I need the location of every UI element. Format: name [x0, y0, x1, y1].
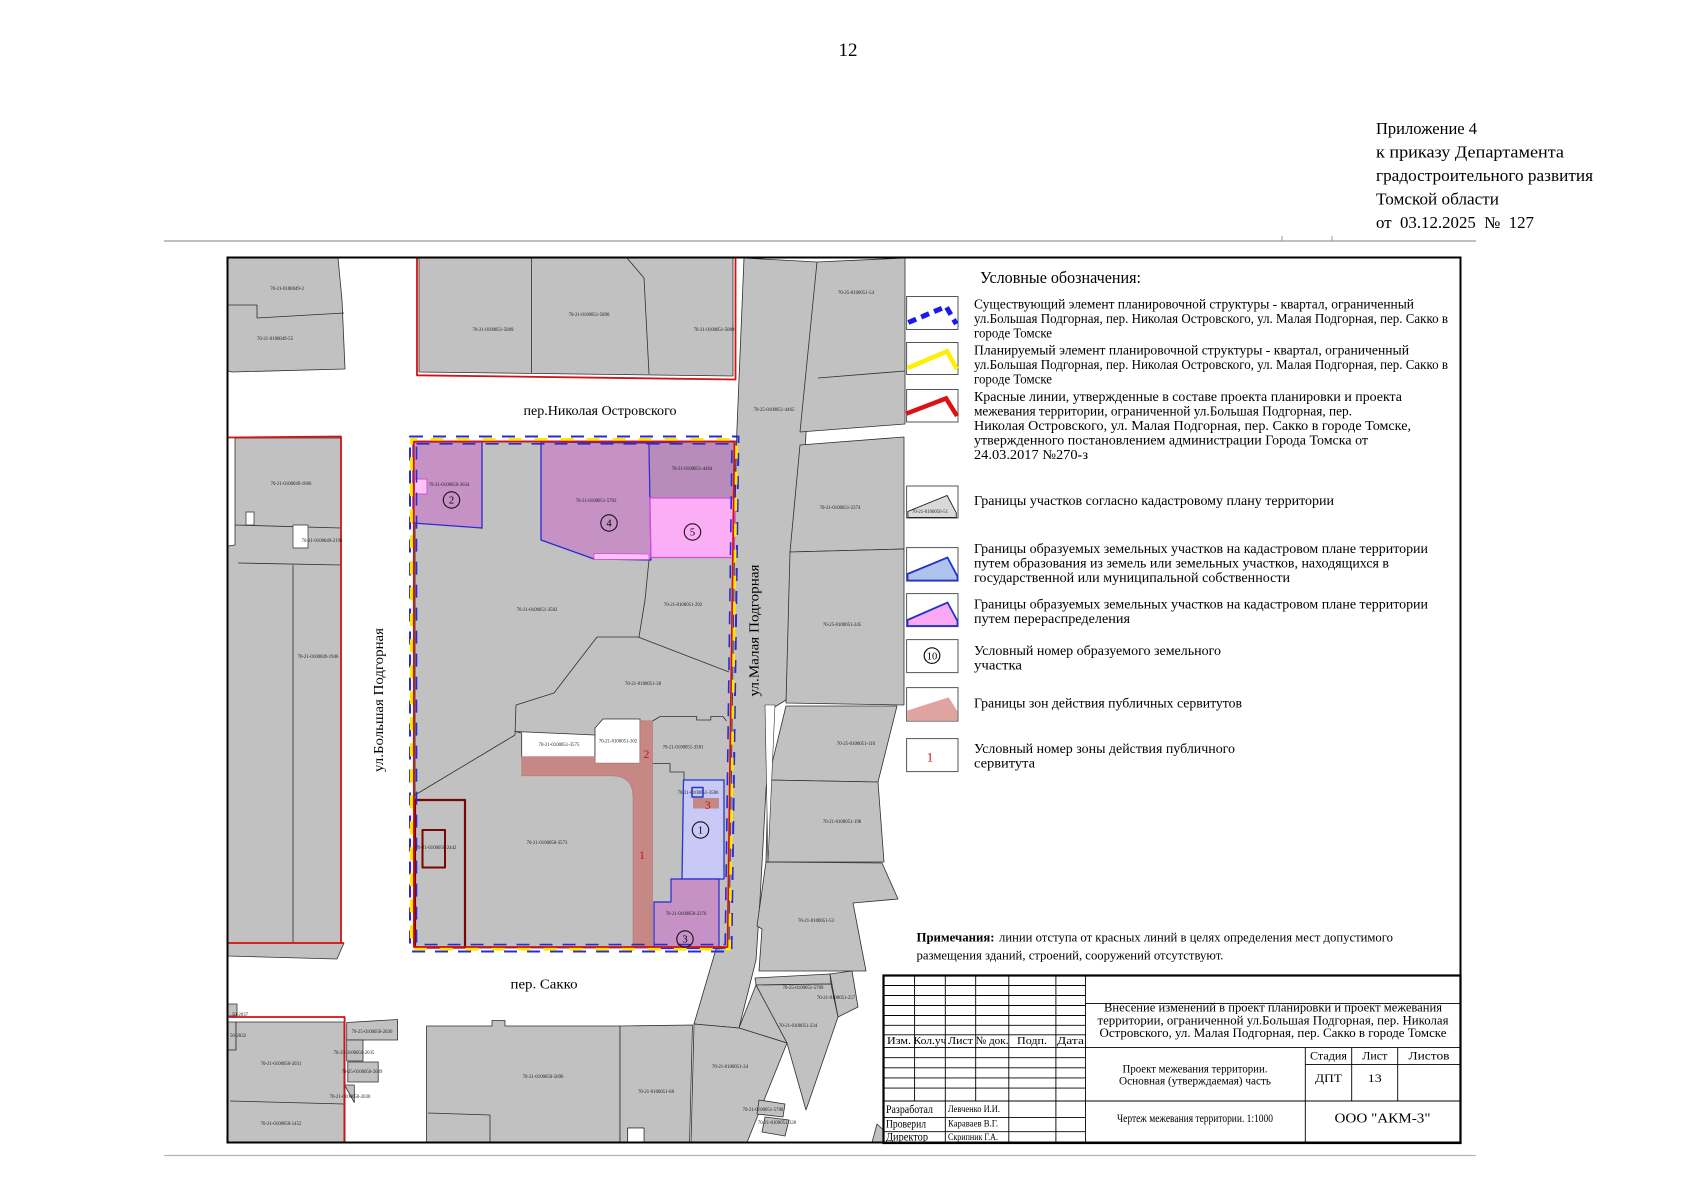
- svg-text:Изм.: Изм.: [887, 1035, 911, 1047]
- svg-text:Проверил: Проверил: [886, 1118, 926, 1130]
- svg-text:Левченко И.И.: Левченко И.И.: [948, 1105, 1000, 1115]
- svg-text:70-25-0100051-110: 70-25-0100051-110: [837, 742, 876, 747]
- svg-text:70-21-0100051-5089: 70-21-0100051-5089: [473, 328, 514, 333]
- svg-text:участка: участка: [974, 658, 1022, 673]
- svg-text:70-25-0100050-2035: 70-25-0100050-2035: [334, 1051, 375, 1056]
- svg-text:70-21-0100049-55: 70-21-0100049-55: [257, 337, 294, 342]
- svg-text:от 03.12.2025 № 127: от 03.12.2025 № 127: [1376, 213, 1534, 232]
- svg-text:70-21-0100049-2198: 70-21-0100049-2198: [302, 539, 343, 544]
- svg-text:70-21-0100051-34: 70-21-0100051-34: [712, 1065, 749, 1070]
- svg-text:межевания территории, ограниче: межевания территории, ограниченной ул.Бо…: [974, 404, 1352, 419]
- svg-text:70-21-0100051-3581: 70-21-0100051-3581: [663, 746, 704, 751]
- svg-text:70-21-0100051-234: 70-21-0100051-234: [779, 1024, 818, 1029]
- svg-text:Островского, ул. Малая Подгорн: Островского, ул. Малая Подгорная, пер. С…: [1100, 1025, 1447, 1040]
- svg-text:1: 1: [698, 826, 703, 837]
- svg-text:70-21-0100051-198: 70-21-0100051-198: [823, 820, 862, 825]
- svg-text:Условный номер зоны действия п: Условный номер зоны действия публичного: [974, 741, 1235, 756]
- svg-text:70-21-0100049-3: 70-21-0100049-3: [270, 287, 304, 292]
- svg-text:10: 10: [927, 651, 938, 662]
- svg-text:70-21-0100051-4464: 70-21-0100051-4464: [672, 467, 713, 472]
- svg-text:государственной или муниципаль: государственной или муниципальной собств…: [974, 570, 1290, 585]
- svg-text:70-21-0100049-1946: 70-21-0100049-1946: [298, 655, 339, 660]
- svg-text:1: 1: [639, 850, 645, 862]
- svg-text:70-21-0100050-3573: 70-21-0100050-3573: [527, 841, 568, 846]
- svg-text:Планируемый элемент планировоч: Планируемый элемент планировочной структ…: [974, 343, 1409, 358]
- svg-text:70-21-0100051-3582: 70-21-0100051-3582: [517, 608, 558, 613]
- svg-text:70-21-0100050-5696: 70-21-0100050-5696: [523, 1075, 564, 1080]
- svg-text:Николая Островского, ул. Малая: Николая Островского, ул. Малая Подгорная…: [974, 418, 1411, 433]
- svg-text:2: 2: [449, 496, 454, 507]
- svg-text:Границы участков согласно када: Границы участков согласно кадастровому п…: [974, 493, 1334, 508]
- svg-text:70-21-0100050-1452: 70-21-0100050-1452: [261, 1122, 302, 1127]
- svg-text:Границы образуемых земельных у: Границы образуемых земельных участков на…: [974, 541, 1428, 556]
- svg-text:5: 5: [690, 528, 695, 539]
- svg-text:70-21-0100051-257: 70-21-0100051-257: [817, 996, 856, 1001]
- svg-text:70-21-0100051-292: 70-21-0100051-292: [664, 603, 703, 608]
- svg-text:ООО "АКМ-3": ООО "АКМ-3": [1335, 1112, 1431, 1127]
- svg-text:4: 4: [606, 519, 612, 530]
- svg-text:70-21-0100050-2031: 70-21-0100050-2031: [261, 1062, 302, 1067]
- svg-text:Лист: Лист: [948, 1035, 973, 1047]
- svg-text:Томской области: Томской области: [1376, 190, 1499, 209]
- svg-text:Границы зон действия публичных: Границы зон действия публичных сервитуто…: [974, 696, 1242, 711]
- svg-text:70-21-0100050-2038: 70-21-0100050-2038: [330, 1095, 371, 1100]
- svg-text:70-21-0100051-3575: 70-21-0100051-3575: [539, 743, 580, 748]
- svg-text:70-25-0100051-245: 70-25-0100051-245: [823, 623, 862, 628]
- svg-text:70-21-0100049-1666: 70-21-0100049-1666: [271, 482, 312, 487]
- svg-text:50-2037: 50-2037: [232, 1013, 249, 1018]
- svg-text:70-21-0100051-302: 70-21-0100051-302: [599, 740, 638, 745]
- svg-text:к приказу Департамента: к приказу Департамента: [1376, 143, 1565, 162]
- svg-text:ул.Большая Подгорная: ул.Большая Подгорная: [372, 627, 387, 772]
- svg-text:70-21-0100051-5890: 70-21-0100051-5890: [569, 313, 610, 318]
- svg-text:70-25-0100050-2036: 70-25-0100050-2036: [352, 1030, 393, 1035]
- svg-text:3: 3: [682, 935, 687, 946]
- svg-text:сервитута: сервитута: [974, 756, 1035, 771]
- svg-text:Основная (утверждаемая) часть: Основная (утверждаемая) часть: [1119, 1074, 1272, 1088]
- svg-text:Разработал: Разработал: [886, 1104, 933, 1116]
- svg-text:70-21-0100051-38: 70-21-0100051-38: [625, 682, 662, 687]
- svg-text:Лист: Лист: [1362, 1051, 1387, 1063]
- svg-text:70-21-0100051-2374: 70-21-0100051-2374: [820, 506, 861, 511]
- svg-text:Дата: Дата: [1057, 1035, 1084, 1047]
- svg-text:Примечания:: Примечания:: [917, 930, 995, 945]
- svg-text:Существующий элемент планирово: Существующий элемент планировочной струк…: [974, 297, 1414, 312]
- svg-text:70-21-0100051-68: 70-21-0100051-68: [638, 1090, 675, 1095]
- svg-text:путем перераспределения: путем перераспределения: [974, 611, 1130, 626]
- svg-text:Условный номер образуемого зем: Условный номер образуемого земельного: [974, 643, 1221, 658]
- svg-text:50-2032: 50-2032: [230, 1034, 247, 1039]
- svg-text:70-21-0100051-5089: 70-21-0100051-5089: [694, 328, 735, 333]
- svg-text:градостроительного развития: градостроительного развития: [1376, 166, 1593, 185]
- svg-text:70-25-0100051-4465: 70-25-0100051-4465: [754, 408, 795, 413]
- svg-text:70-21-0100051-5708: 70-21-0100051-5708: [743, 1108, 784, 1113]
- svg-text:2: 2: [644, 749, 650, 761]
- svg-text:городе Томске: городе Томске: [974, 372, 1052, 387]
- svg-text:70-21-0100050-51: 70-21-0100050-51: [912, 510, 949, 515]
- svg-text:Подп.: Подп.: [1017, 1035, 1047, 1047]
- svg-text:линии отступа от красных линий: линии отступа от красных линий в целях о…: [999, 930, 1393, 945]
- svg-text:13: 13: [1368, 1071, 1382, 1085]
- svg-text:пер.Николая Островского: пер.Николая Островского: [524, 404, 677, 419]
- svg-text:Чертеж межевания территории.: Чертеж межевания территории. 1:1000: [1117, 1113, 1273, 1125]
- svg-text:70-21-0100051-53: 70-21-0100051-53: [798, 919, 835, 924]
- svg-text:70-21-0100051-5703: 70-21-0100051-5703: [576, 499, 617, 504]
- svg-text:Караваев В.Г.: Караваев В.Г.: [948, 1120, 998, 1130]
- svg-text:Границы образуемых земельных у: Границы образуемых земельных участков на…: [974, 597, 1428, 612]
- svg-text:Красные линии, утвержденные в: Красные линии, утвержденные в составе пр…: [974, 389, 1402, 404]
- svg-text:70-25-0100051-54: 70-25-0100051-54: [838, 291, 875, 296]
- svg-text:№ док.: № док.: [976, 1035, 1009, 1047]
- svg-text:1: 1: [927, 750, 934, 765]
- svg-text:70-21-0100050-2442: 70-21-0100050-2442: [416, 846, 457, 851]
- svg-text:70-21-0100050-2634: 70-21-0100050-2634: [429, 483, 470, 488]
- svg-text:Стадия: Стадия: [1310, 1051, 1347, 1063]
- svg-text:70-25-0100051-5709: 70-25-0100051-5709: [783, 986, 824, 991]
- svg-text:размещения зданий, строений, с: размещения зданий, строений, сооружений …: [917, 948, 1224, 963]
- svg-text:ул.Малая Подгорная: ул.Малая Подгорная: [748, 564, 763, 697]
- svg-text:ул.Большая Подгорная, пер. Ник: ул.Большая Подгорная, пер. Николая Остро…: [974, 357, 1448, 372]
- svg-text:пер. Сакко: пер. Сакко: [511, 978, 578, 993]
- svg-text:70-21-0100051-328: 70-21-0100051-328: [758, 1121, 797, 1126]
- svg-text:Условные обозначения:: Условные обозначения:: [980, 268, 1141, 287]
- svg-text:12: 12: [839, 40, 858, 61]
- svg-text:Листов: Листов: [1409, 1051, 1450, 1063]
- svg-text:ул.Большая Подгорная, пер. Ник: ул.Большая Подгорная, пер. Николая Остро…: [974, 311, 1448, 326]
- svg-text:3: 3: [705, 800, 711, 812]
- svg-text:городе Томске: городе Томске: [974, 326, 1052, 341]
- svg-text:утвержденного постановлением а: утвержденного постановлением администрац…: [974, 433, 1368, 448]
- svg-text:Приложение 4: Приложение 4: [1376, 119, 1477, 138]
- svg-text:70-25-0100050-2039: 70-25-0100050-2039: [342, 1070, 383, 1075]
- svg-text:70-21-0100050-2376: 70-21-0100050-2376: [666, 912, 707, 917]
- svg-text:70-21-0100051-3586: 70-21-0100051-3586: [678, 791, 719, 796]
- svg-text:24.03.2017 №270-з: 24.03.2017 №270-з: [974, 447, 1088, 462]
- svg-text:путем образования из земель ил: путем образования из земель или земельны…: [974, 556, 1389, 571]
- svg-text:Кол.уч: Кол.уч: [914, 1035, 947, 1047]
- svg-text:ДПТ: ДПТ: [1315, 1071, 1343, 1085]
